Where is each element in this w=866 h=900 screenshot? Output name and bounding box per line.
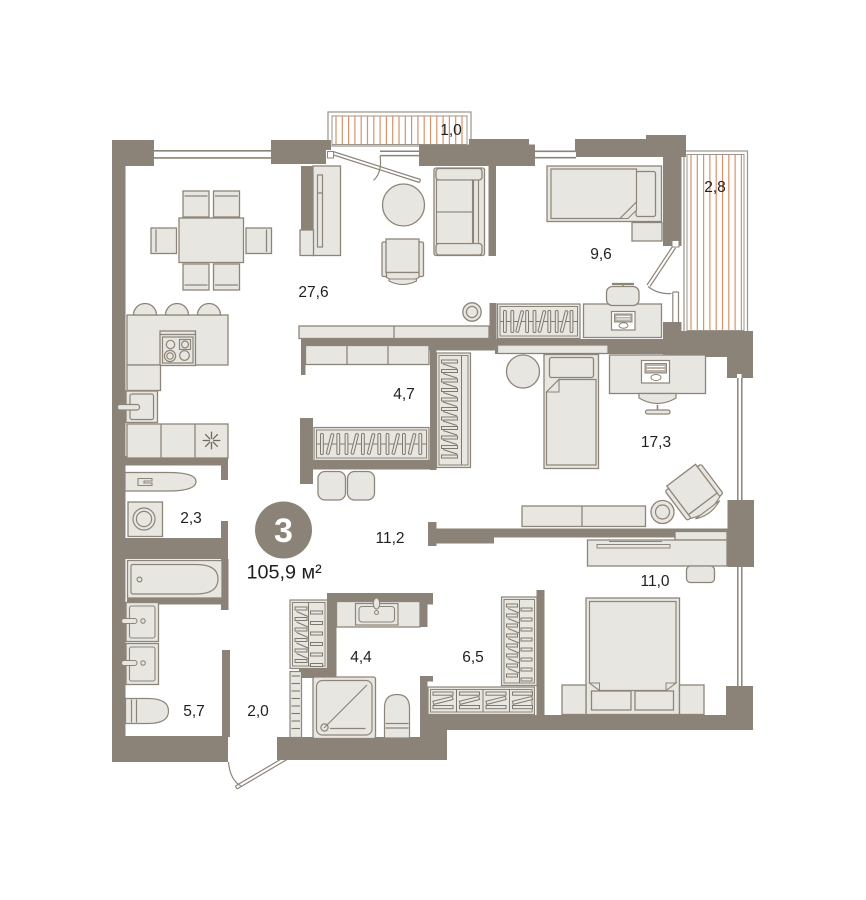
svg-text:2,8: 2,8 bbox=[704, 179, 726, 196]
svg-text:9,6: 9,6 bbox=[590, 246, 612, 263]
svg-text:6,5: 6,5 bbox=[462, 649, 484, 666]
svg-text:27,6: 27,6 bbox=[298, 284, 328, 301]
svg-text:11,0: 11,0 bbox=[640, 573, 669, 590]
svg-text:3: 3 bbox=[274, 512, 293, 550]
svg-text:1,0: 1,0 bbox=[440, 122, 462, 139]
svg-text:17,3: 17,3 bbox=[641, 434, 671, 451]
svg-text:4,4: 4,4 bbox=[350, 649, 372, 666]
svg-text:5,7: 5,7 bbox=[183, 703, 205, 720]
svg-text:4,7: 4,7 bbox=[393, 386, 415, 403]
svg-text:105,9 м²: 105,9 м² bbox=[247, 562, 323, 584]
svg-text:2,3: 2,3 bbox=[180, 510, 202, 527]
svg-text:2,0: 2,0 bbox=[247, 703, 269, 720]
svg-text:11,2: 11,2 bbox=[375, 530, 404, 547]
